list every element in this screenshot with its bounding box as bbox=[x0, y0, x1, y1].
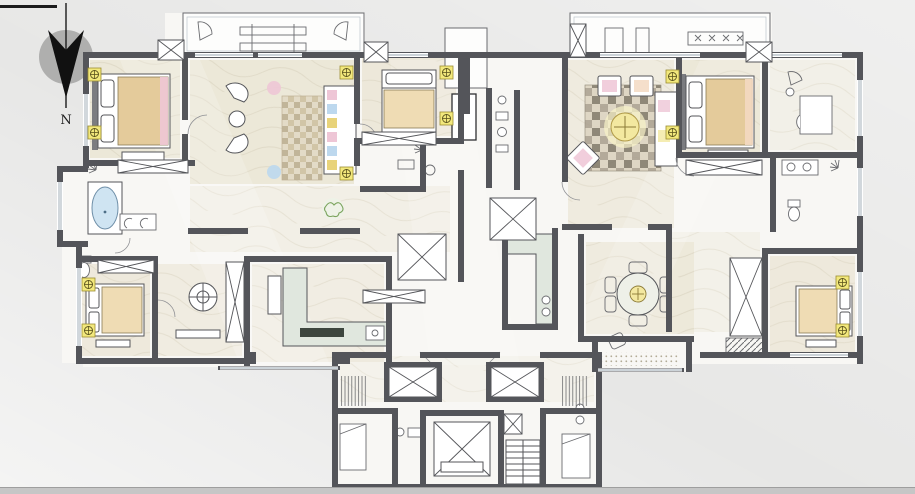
drying-rack-icon bbox=[562, 376, 588, 406]
counter-appliance bbox=[300, 328, 344, 337]
bed-icon-master-left bbox=[92, 72, 170, 160]
window bbox=[258, 53, 302, 57]
entry-step-hatch bbox=[726, 338, 764, 354]
balcony-railing-icon bbox=[183, 13, 364, 55]
ceiling-light-icon bbox=[440, 112, 453, 125]
duct-shaft-icon bbox=[504, 414, 522, 434]
column-shaft-icon bbox=[158, 40, 184, 60]
kitchen-cabinet bbox=[268, 276, 281, 314]
sink-icon-kitchen bbox=[366, 326, 384, 340]
window bbox=[598, 369, 682, 372]
stairs-icon bbox=[506, 440, 540, 484]
storage-icon bbox=[398, 234, 446, 280]
north-label: N bbox=[60, 113, 71, 128]
balcony-railing-icon bbox=[570, 13, 770, 57]
wardrobe-icon bbox=[730, 258, 762, 336]
ceiling-light-icon bbox=[836, 324, 849, 337]
window bbox=[857, 272, 863, 336]
window bbox=[857, 80, 863, 136]
ceiling-light-icon bbox=[88, 126, 101, 139]
bed-icon-bedroom2 bbox=[382, 70, 436, 132]
stipple-band bbox=[600, 352, 678, 366]
storage-icon bbox=[490, 198, 536, 240]
duct-shaft-icon bbox=[389, 367, 437, 397]
wardrobe-icon bbox=[686, 160, 762, 175]
column-shaft-icon bbox=[570, 24, 586, 57]
bed-icon-master-right bbox=[680, 74, 754, 157]
window bbox=[857, 168, 863, 216]
stool-icon bbox=[267, 81, 281, 95]
ceiling-light-icon bbox=[666, 126, 679, 139]
elevator-icon bbox=[434, 422, 490, 476]
wardrobe-icon bbox=[98, 260, 154, 273]
stool-icon bbox=[267, 165, 281, 179]
terrace-right bbox=[570, 13, 770, 57]
ceiling-light-icon bbox=[340, 66, 353, 79]
drying-rack-icon bbox=[340, 376, 366, 406]
wardrobe-icon bbox=[363, 290, 425, 303]
bathtub-icon bbox=[88, 182, 122, 234]
ceiling-light-icon bbox=[836, 276, 849, 289]
window bbox=[772, 53, 842, 57]
ceiling-light-icon bbox=[82, 324, 95, 337]
column-shaft-icon bbox=[746, 42, 772, 62]
sink-icon-double-right bbox=[782, 160, 818, 175]
floor-plan-image: N bbox=[0, 0, 915, 494]
bottom-bar bbox=[0, 488, 915, 494]
window bbox=[76, 268, 82, 346]
floor-plan-page: N bbox=[0, 0, 915, 494]
sofa-icon-family-room bbox=[324, 86, 356, 174]
tea-table-icon bbox=[604, 106, 646, 148]
ceiling-light-icon bbox=[666, 70, 679, 83]
wardrobe-icon bbox=[362, 132, 436, 145]
sink-icon-double bbox=[120, 214, 156, 230]
column-shaft-icon bbox=[364, 42, 388, 62]
ceiling-light-icon bbox=[88, 68, 101, 81]
window bbox=[57, 182, 63, 230]
ceiling-light-icon bbox=[440, 66, 453, 79]
toilet-icon bbox=[788, 200, 800, 221]
terrace-left bbox=[183, 13, 364, 55]
duct-shaft-icon bbox=[491, 367, 539, 397]
rug-icon-mosaic bbox=[282, 96, 322, 180]
plant-icon bbox=[322, 198, 344, 220]
wardrobe-icon bbox=[226, 262, 244, 342]
wardrobe-icon bbox=[118, 160, 188, 173]
window bbox=[220, 367, 338, 370]
window bbox=[600, 53, 700, 57]
ceiling-light-icon bbox=[340, 167, 353, 180]
window bbox=[195, 53, 253, 57]
ceiling-light-icon bbox=[82, 278, 95, 291]
window bbox=[790, 353, 848, 357]
